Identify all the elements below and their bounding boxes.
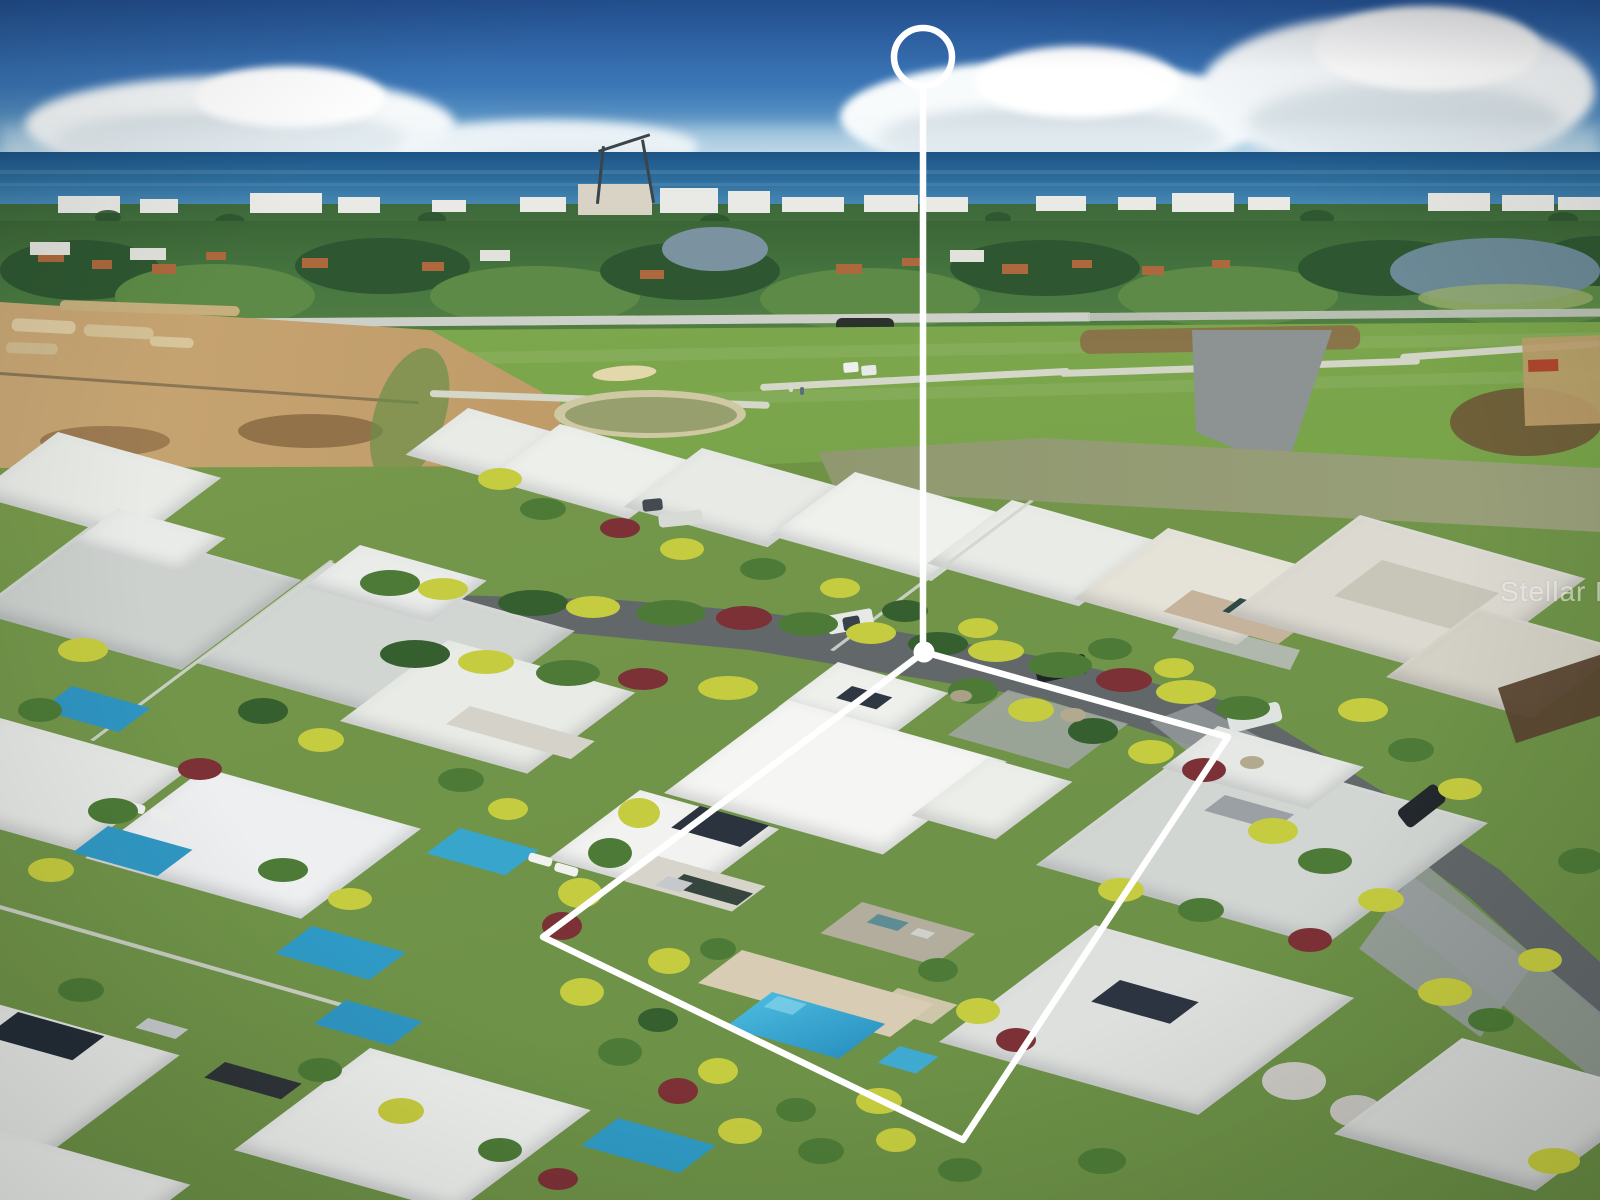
- vignette: [0, 0, 1600, 1200]
- top-shade: [0, 0, 1600, 70]
- aerial-property-photo: Stellar MLS: [0, 0, 1600, 1200]
- photo-scene: [0, 0, 1600, 1200]
- watermark: Stellar MLS: [1500, 576, 1600, 608]
